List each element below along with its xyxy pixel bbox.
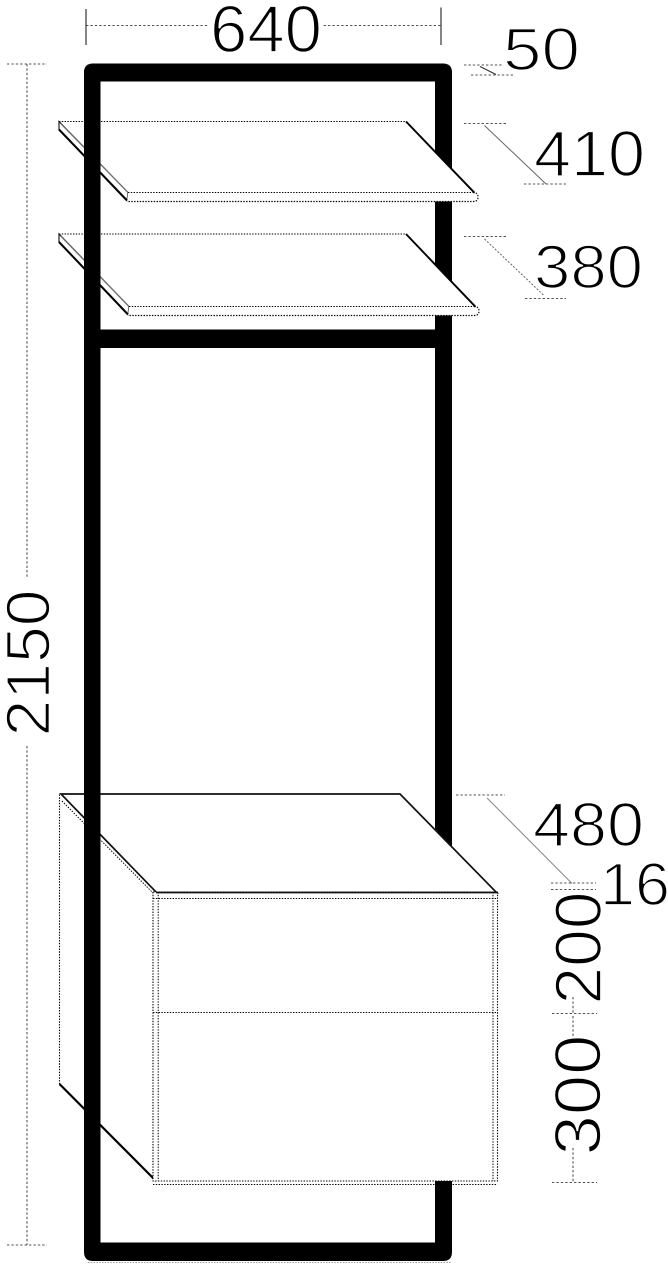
svg-text:50: 50 [503, 16, 580, 83]
svg-text:480: 480 [533, 791, 644, 860]
svg-text:300: 300 [541, 1035, 615, 1156]
svg-text:640: 640 [210, 0, 322, 67]
svg-text:410: 410 [534, 117, 645, 190]
svg-text:200: 200 [541, 892, 615, 1005]
svg-text:380: 380 [534, 233, 643, 301]
svg-text:2150: 2150 [0, 590, 64, 737]
